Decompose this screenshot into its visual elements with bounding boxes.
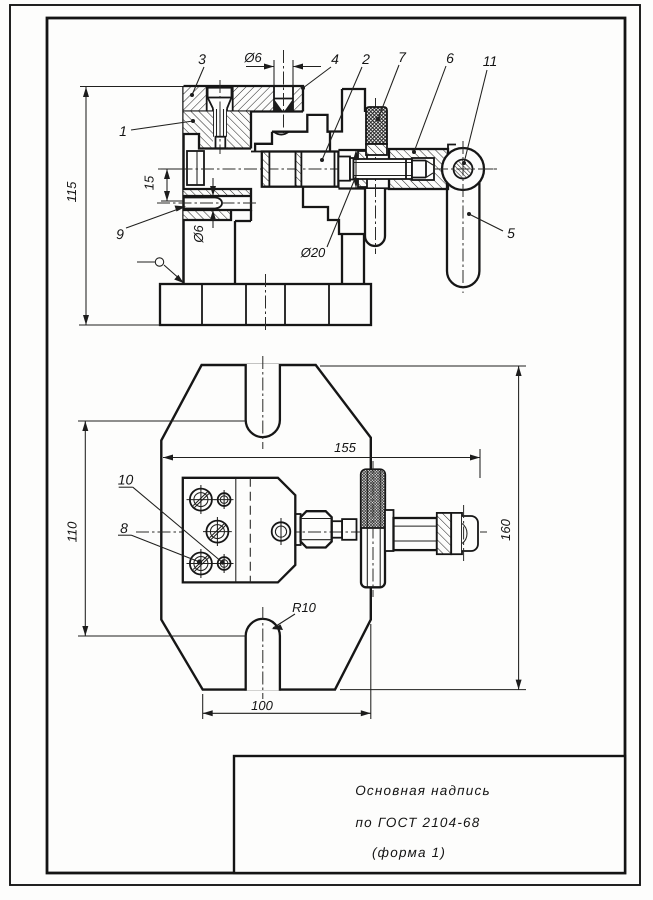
svg-text:155: 155	[334, 440, 356, 455]
svg-text:160: 160	[498, 518, 513, 540]
svg-text:9: 9	[116, 226, 124, 242]
svg-text:Ø20: Ø20	[300, 245, 326, 260]
svg-text:Основная надпись: Основная надпись	[355, 783, 491, 798]
svg-text:(форма 1): (форма 1)	[372, 845, 446, 860]
svg-text:Ø6: Ø6	[191, 225, 206, 244]
svg-text:Ø6: Ø6	[243, 50, 262, 65]
svg-text:по ГОСТ 2104-68: по ГОСТ 2104-68	[356, 815, 481, 830]
svg-text:10: 10	[118, 472, 134, 488]
svg-text:7: 7	[398, 49, 407, 65]
svg-text:3: 3	[198, 51, 206, 67]
svg-text:8: 8	[120, 520, 128, 536]
svg-text:2: 2	[361, 51, 370, 67]
svg-text:110: 110	[65, 521, 80, 542]
svg-text:6: 6	[446, 50, 454, 66]
svg-text:4: 4	[331, 51, 339, 67]
svg-text:R10: R10	[292, 600, 317, 615]
svg-text:5: 5	[507, 225, 515, 241]
svg-text:15: 15	[142, 175, 157, 190]
svg-text:115: 115	[64, 181, 79, 202]
svg-text:100: 100	[251, 698, 273, 713]
svg-text:1: 1	[119, 123, 127, 139]
svg-text:11: 11	[483, 53, 498, 69]
